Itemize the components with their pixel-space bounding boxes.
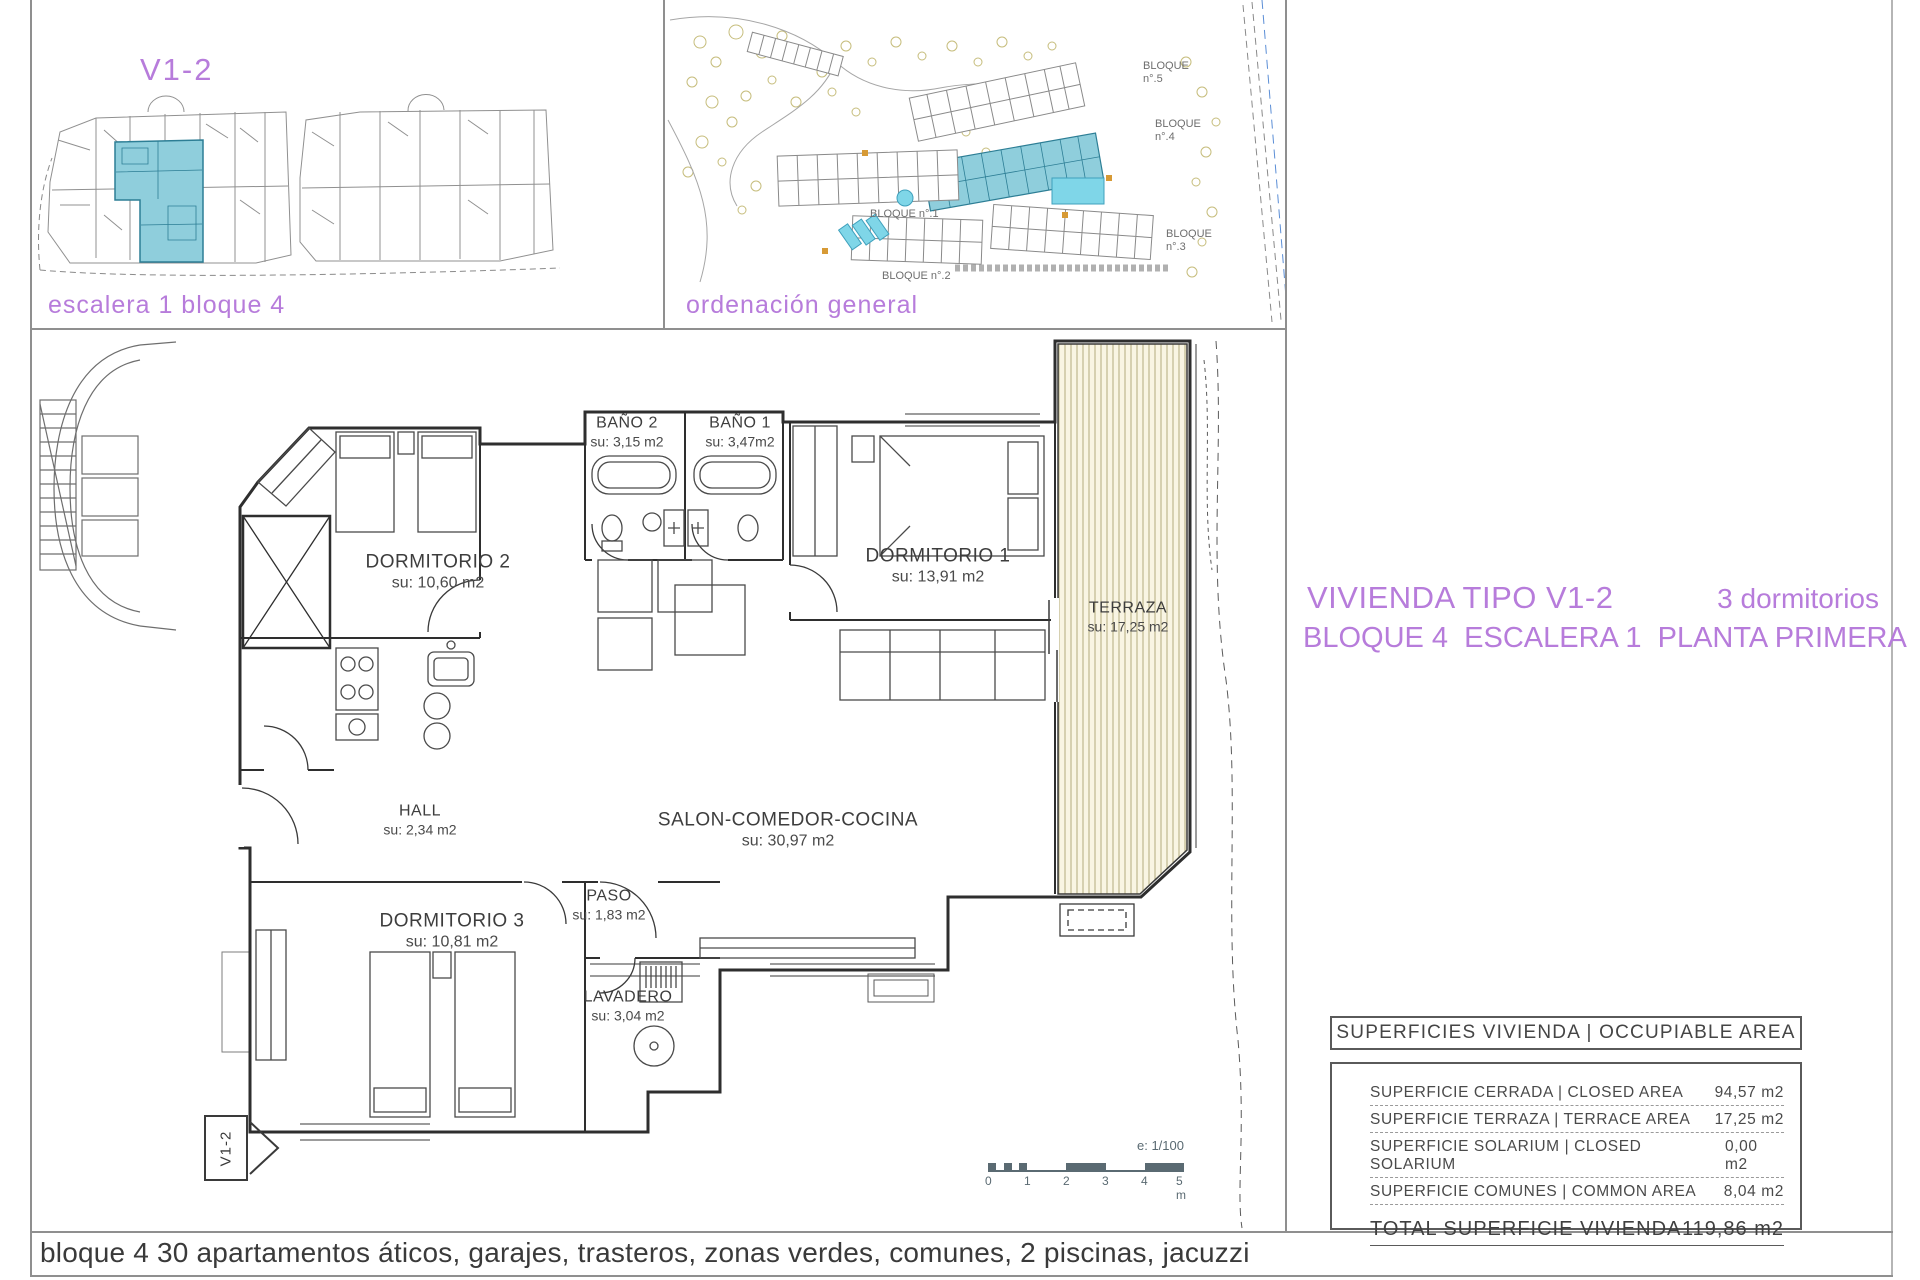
- room-label-dormitorio-3: DORMITORIO 3 su: 10,81 m2: [380, 910, 525, 953]
- site-panel-caption: ordenación general: [686, 291, 918, 320]
- site-label-bloque-4: BLOQUE n°.4: [1155, 118, 1207, 143]
- plot-boundary-dashed: [1204, 341, 1242, 1228]
- title-line-1: VIVIENDA TIPO V1-2 3 dormitorios: [1303, 580, 1881, 618]
- entry-arrow-icon: [246, 1118, 286, 1178]
- site-label-bloque-2: BLOQUE n°.2: [882, 270, 951, 283]
- footer-caption: bloque 4 30 apartamentos áticos, garajes…: [40, 1237, 1250, 1269]
- scale-tick-4: 4: [1141, 1174, 1148, 1188]
- surface-row-terraza: SUPERFICIE TERRAZA | TERRACE AREA 17,25 …: [1370, 1111, 1784, 1133]
- scale-tick-2: 2: [1063, 1174, 1070, 1188]
- entry-marker-box: V1-2: [204, 1115, 248, 1181]
- site-block-3: [991, 204, 1154, 259]
- site-plan-drawing: [663, 0, 1285, 329]
- scale-tick-3: 3: [1102, 1174, 1109, 1188]
- room-label-lavadero: LAVADERO su: 3,04 m2: [584, 988, 673, 1025]
- neighbour-window-box: [222, 952, 250, 1052]
- surface-row-comunes: SUPERFICIE COMUNES | COMMON AREA 8,04 m2: [1370, 1183, 1784, 1205]
- site-road-dashed: [1243, 2, 1281, 322]
- surface-table: SUPERFICIES VIVIENDA | OCCUPIABLE AREA S…: [1330, 1016, 1802, 1230]
- site-block-1: [777, 150, 959, 206]
- ac-unit: [1060, 904, 1134, 936]
- surface-row-cerrada: SUPERFICIE CERRADA | CLOSED AREA 94,57 m…: [1370, 1084, 1784, 1106]
- scale-tick-1: 1: [1024, 1174, 1031, 1188]
- room-label-dormitorio-1: DORMITORIO 1 su: 13,91 m2: [866, 545, 1011, 588]
- site-label-bloque-3: BLOQUE n°.3: [1166, 228, 1218, 253]
- room-label-bano-1: BAÑO 1 su: 3,47m2: [705, 414, 774, 451]
- room-label-terraza: TERRAZA su: 17,25 m2: [1088, 599, 1169, 636]
- scale-tick-0: 0: [985, 1174, 992, 1188]
- window-bay-box: [868, 974, 934, 1002]
- surface-row-solarium: SUPERFICIE SOLARIUM | CLOSED SOLARIUM 0,…: [1370, 1138, 1784, 1178]
- site-label-bloque-5: BLOQUE n°.5: [1143, 60, 1195, 85]
- stairwell-structure: [40, 342, 176, 630]
- key-plan-wing-right: [300, 95, 553, 261]
- title-vivienda-tipo: VIVIENDA TIPO V1-2: [1307, 580, 1613, 616]
- site-garages: [747, 32, 843, 76]
- room-label-hall: HALL su: 2,34 m2: [383, 802, 456, 839]
- title-dormitorios: 3 dormitorios: [1717, 583, 1879, 615]
- key-plan-highlighted-unit: [115, 140, 203, 262]
- title-block: VIVIENDA TIPO V1-2 3 dormitorios BLOQUE …: [1303, 580, 1881, 655]
- room-label-salon: SALON-COMEDOR-COCINA su: 30,97 m2: [658, 809, 918, 852]
- scale-ratio: e: 1/100: [1090, 1138, 1184, 1153]
- surface-table-body: SUPERFICIE CERRADA | CLOSED AREA 94,57 m…: [1330, 1062, 1802, 1230]
- frame-bottom: [30, 1275, 1893, 1277]
- key-panel-caption: escalera 1 bloque 4: [48, 291, 285, 320]
- apartment-outline: [240, 341, 1190, 1132]
- site-block-5: [909, 63, 1084, 141]
- surface-total-row: TOTAL SUPERFICIE VIVIENDA 119,86 m2: [1370, 1210, 1784, 1246]
- site-label-bloque-1: BLOQUE n°.1: [870, 208, 939, 221]
- scale-bar: 0 1 2 3 4 5 m: [988, 1158, 1184, 1188]
- entry-marker-label: V1-2: [218, 1130, 235, 1166]
- room-label-dormitorio-2: DORMITORIO 2 su: 10,60 m2: [366, 551, 511, 594]
- site-utility-dashed-blue: [1262, 0, 1285, 322]
- room-label-paso: PASO su: 1,83 m2: [572, 887, 645, 924]
- floor-plan-drawing: [32, 330, 1284, 1231]
- surface-table-header: SUPERFICIES VIVIENDA | OCCUPIABLE AREA: [1330, 1016, 1802, 1050]
- divider-main-right: [1285, 0, 1287, 1233]
- title-line-2: BLOQUE 4 ESCALERA 1 PLANTA PRIMERA: [1303, 622, 1881, 655]
- room-label-bano-2: BAÑO 2 su: 3,15 m2: [590, 414, 663, 451]
- key-plan-drawing: [30, 0, 663, 329]
- scale-tick-5: 5 m: [1176, 1174, 1186, 1202]
- plan-sheet: V1-2 escalera 1 bloque 4: [0, 0, 1920, 1280]
